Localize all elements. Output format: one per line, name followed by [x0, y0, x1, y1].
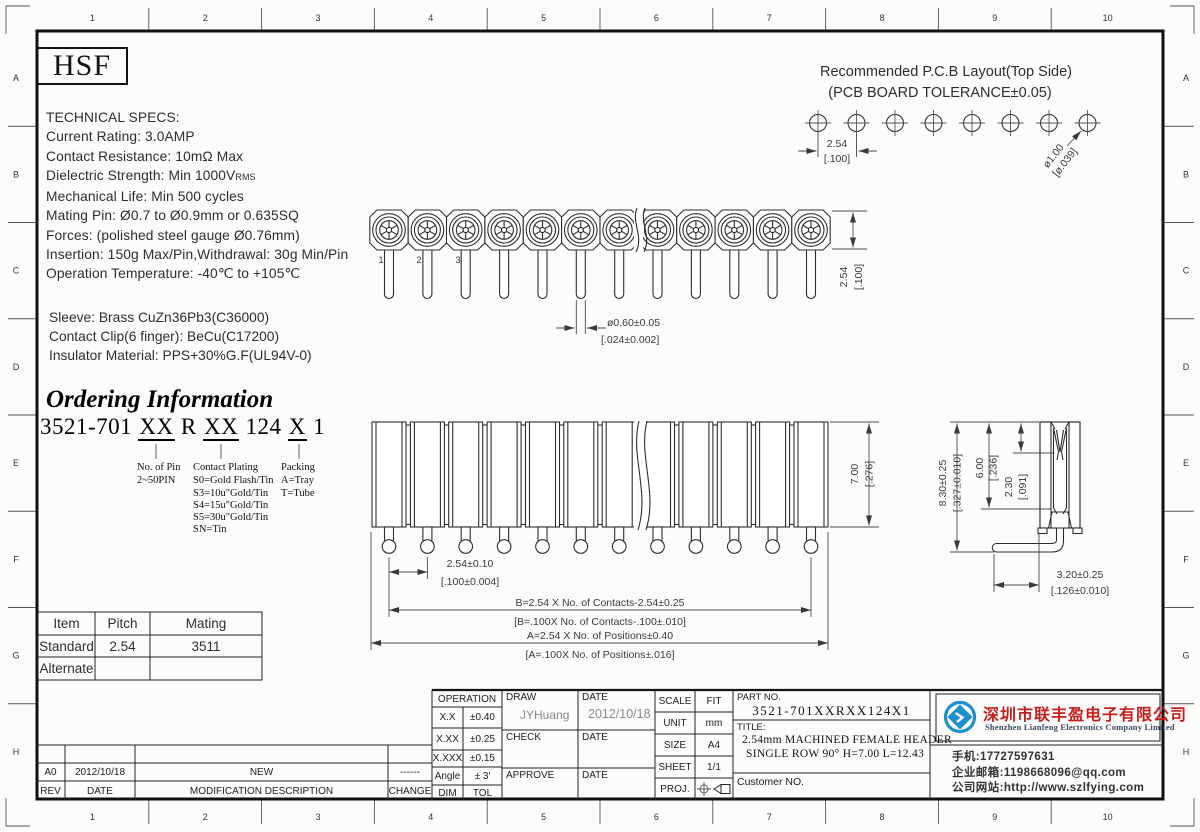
body-width-dim-mm: 2.54 — [838, 267, 850, 288]
pcb-layout-title: Recommended P.C.B Layout(Top Side) — [771, 64, 1121, 80]
materials: Sleeve: Brass CuZn36Pb3(C36000) Contact … — [49, 308, 312, 365]
title-label: TITLE: — [737, 722, 766, 733]
svg-text:3: 3 — [315, 812, 320, 822]
svg-text:7: 7 — [767, 812, 772, 822]
mating-header-item: Item — [38, 616, 95, 631]
svg-text:G: G — [1182, 651, 1189, 661]
sheet-label: SHEET — [655, 762, 695, 773]
mating-standard-mating: 3511 — [150, 639, 262, 654]
front-view-drawing: 2.54±0.10 [.100±0.004] 7.00 [.276] B=2.5… — [371, 420, 879, 661]
title-line1: 2.54mm MACHINED FEMALE HEADER — [742, 734, 952, 746]
check-label: CHECK — [506, 732, 541, 743]
mating-header-pitch: Pitch — [95, 616, 150, 631]
svg-text:D: D — [13, 362, 20, 372]
sheet-value: 1/1 — [695, 762, 733, 773]
svg-text:7: 7 — [767, 13, 772, 23]
total-height-dim-inch: [.327±0.010] — [952, 454, 964, 512]
spec-dielectric-strength: Dielectric Strength: Min 1000VRMS — [46, 166, 348, 187]
svg-text:C: C — [1183, 266, 1190, 276]
rev-entry-description: NEW — [135, 767, 388, 778]
company-contact: 手机:17727597631 企业邮箱:1198668096@qq.com 公司… — [952, 750, 1144, 797]
body-height-dim-mm: 7.00 — [849, 464, 861, 485]
pin-pitch-dim-inch: [.100±0.004] — [441, 576, 499, 588]
svg-text:C: C — [13, 266, 20, 276]
pcb-pitch-dim-inch: [.100] — [824, 153, 850, 165]
spec-insertion: Insertion: 150g Max/Pin,Withdrawal: 30g … — [46, 245, 348, 264]
rev-entry-date: 2012/10/18 — [65, 767, 135, 778]
svg-text:4: 4 — [428, 812, 433, 822]
formula-b-inch: [B=.100X No. of Contacts-.100±.010] — [514, 616, 686, 628]
hsf-logo: HSF — [36, 47, 128, 85]
svg-text:F: F — [1183, 554, 1189, 564]
svg-text:2: 2 — [203, 13, 208, 23]
unit-value: mm — [695, 718, 733, 729]
pn-packing-code: X — [288, 414, 307, 441]
scale-label: SCALE — [655, 696, 695, 707]
rev-header: REV — [36, 786, 65, 797]
mating-row-standard: Standard — [38, 639, 95, 654]
spec-temperature: Operation Temperature: -40℃ to +105℃ — [46, 264, 348, 283]
svg-text:H: H — [1183, 747, 1190, 757]
tol-row-xx: X.X — [432, 712, 463, 723]
ordering-leader-lines — [156, 444, 299, 459]
svg-text:1: 1 — [90, 13, 95, 23]
spec-current-rating: Current Rating: 3.0AMP — [46, 127, 348, 146]
svg-text:B: B — [1183, 169, 1189, 179]
size-label: SIZE — [655, 740, 695, 751]
plating-option-title: Contact Plating — [193, 462, 274, 474]
part-no-label: PART NO. — [737, 692, 781, 703]
company-email: 企业邮箱:1198668096@qq.com — [952, 766, 1144, 782]
draw-date-value: 2012/10/18 — [588, 707, 651, 721]
approve-label: APPROVE — [506, 770, 554, 781]
entry-depth-dim-mm: 2.30 — [1003, 477, 1015, 498]
draw-date-label: DATE — [582, 692, 608, 703]
svg-text:10: 10 — [1103, 13, 1113, 23]
spec-mating-pin: Mating Pin: Ø0.7 to Ø0.9mm or 0.635SQ — [46, 206, 348, 225]
formula-b-mm: B=2.54 X No. of Contacts-2.54±0.25 — [516, 597, 685, 609]
material-insulator: Insulator Material: PPS+30%G.F(UL94V-0) — [49, 346, 312, 365]
material-clip: Contact Clip(6 finger): BeCu(C17200) — [49, 327, 312, 346]
company-phone: 手机:17727597631 — [952, 750, 1144, 766]
pcb-layout-drawing: 2.54 [.100] ø1.00 [ø.039] — [798, 110, 1101, 179]
rev-change-header: CHANGE — [388, 786, 432, 797]
svg-text:9: 9 — [992, 13, 997, 23]
operation-title: OPERATION — [432, 694, 502, 705]
pn-pins-code: XX — [138, 414, 174, 441]
svg-text:E: E — [13, 458, 19, 468]
draw-label: DRAW — [506, 692, 536, 703]
svg-text:8: 8 — [879, 812, 884, 822]
svg-text:A: A — [13, 73, 19, 83]
tail-length-dim-mm: 3.20±0.25 — [1057, 569, 1104, 581]
technical-specs: TECHNICAL SPECS: Current Rating: 3.0AMP … — [46, 108, 348, 284]
size-value: A4 — [695, 740, 733, 751]
unit-label: UNIT — [655, 718, 695, 729]
svg-text:10: 10 — [1103, 812, 1113, 822]
pin3-label: 3 — [455, 255, 460, 266]
rev-description-header: MODIFICATION DESCRIPTION — [135, 786, 388, 797]
svg-text:4: 4 — [428, 13, 433, 23]
svg-text:E: E — [1183, 458, 1189, 468]
svg-text:5: 5 — [541, 13, 546, 23]
ordering-packing-options: Packing A=Tray T=Tube — [281, 462, 315, 500]
engineering-drawing-sheet: 1122334455667788991010AABBCCDDEEFFGGHH 2… — [0, 0, 1200, 832]
title-line2: SINGLE ROW 90° H=7.00 L=12.43 — [746, 748, 924, 760]
insulator-height-dim-mm: 6.00 — [974, 458, 986, 479]
company-name-en: Shenzhen Lianfeng Electronics Company Li… — [985, 722, 1175, 732]
scale-value: FIT — [695, 696, 733, 707]
specs-title: TECHNICAL SPECS: — [46, 108, 348, 127]
svg-text:6: 6 — [654, 13, 659, 23]
svg-text:F: F — [13, 554, 19, 564]
mating-standard-pitch: 2.54 — [95, 639, 150, 654]
mating-header-mating: Mating — [150, 616, 262, 631]
svg-text:B: B — [13, 169, 19, 179]
svg-text:2: 2 — [203, 812, 208, 822]
svg-text:5: 5 — [541, 812, 546, 822]
svg-text:8: 8 — [879, 13, 884, 23]
spec-forces: Forces: (polished steel gauge Ø0.76mm) — [46, 226, 348, 245]
body-width-dim-inch: [.100] — [853, 264, 865, 290]
spec-contact-resistance: Contact Resistance: 10mΩ Max — [46, 147, 348, 166]
rev-entry-change: ------ — [388, 767, 432, 778]
formula-a-inch: [A=.100X No. of Positions±.016] — [525, 649, 674, 661]
draw-name: JYHuang — [520, 708, 569, 722]
insulator-height-dim-inch: [.236] — [988, 455, 1000, 481]
ordering-plating-options: Contact Plating S0=Gold Flash/Tin S3=10u… — [193, 462, 274, 537]
svg-text:G: G — [12, 651, 19, 661]
mating-row-alternate: Alternate — [38, 661, 95, 676]
bent-solder-tail — [992, 528, 1063, 552]
total-height-dim-mm: 8.30±0.25 — [937, 460, 949, 507]
company-website: 公司网站:http://www.szlfying.com — [952, 781, 1144, 797]
svg-text:3: 3 — [315, 13, 320, 23]
entry-depth-dim-inch: [.091] — [1017, 474, 1029, 500]
svg-text:H: H — [13, 747, 20, 757]
svg-text:9: 9 — [992, 812, 997, 822]
tail-dia-dim-mm: ø0.60±0.05 — [607, 317, 660, 329]
pin-pitch-dim-mm: 2.54±0.10 — [447, 558, 494, 570]
formula-a-mm: A=2.54 X No. of Positions±0.40 — [527, 630, 673, 642]
pn-plating-code: XX — [203, 414, 239, 441]
part-no-value: 3521-701XXRXX124X1 — [733, 703, 930, 719]
pcb-layout-tolerance: (PCB BOARD TOLERANCE±0.05) — [765, 85, 1115, 101]
projection-symbol — [697, 782, 730, 796]
pin2-label: 2 — [416, 255, 421, 266]
body-height-dim-inch: [.276] — [864, 461, 876, 487]
top-view-drawing: 1 2 3 ø0.60±0.05 [.024±0.002] 2.54 [.100… — [370, 206, 867, 346]
rev-entry-rev: A0 — [36, 767, 65, 778]
ordering-heading: Ordering Information — [46, 386, 273, 414]
svg-text:D: D — [1183, 362, 1190, 372]
svg-text:A: A — [1183, 73, 1189, 83]
svg-text:6: 6 — [654, 812, 659, 822]
ordering-pins-option: No. of Pin 2~50PIN — [137, 462, 180, 488]
side-view-drawing: 8.30±0.25 [.327±0.010] 6.00 [.236] 2.30 … — [937, 422, 1109, 597]
packing-option-title: Packing — [281, 462, 315, 474]
pin1-label: 1 — [378, 255, 383, 266]
customer-no-label: Customer NO. — [737, 776, 804, 788]
hsf-logo-text: HSF — [53, 49, 111, 83]
rev-date-header: DATE — [65, 786, 135, 797]
spec-mechanical-life: Mechanical Life: Min 500 cycles — [46, 187, 348, 206]
proj-label: PROJ. — [655, 784, 695, 795]
pins-option-title: No. of Pin — [137, 462, 180, 474]
material-sleeve: Sleeve: Brass CuZn36Pb3(C36000) — [49, 308, 312, 327]
pcb-pitch-dim-mm: 2.54 — [827, 138, 848, 150]
svg-text:1: 1 — [90, 812, 95, 822]
ordering-part-number: 3521-701 XX R XX 124 X 1 — [40, 414, 325, 440]
tail-length-dim-inch: [.126±0.010] — [1051, 585, 1109, 597]
tail-dia-dim-inch: [.024±0.002] — [601, 334, 659, 346]
company-logo — [946, 703, 975, 732]
